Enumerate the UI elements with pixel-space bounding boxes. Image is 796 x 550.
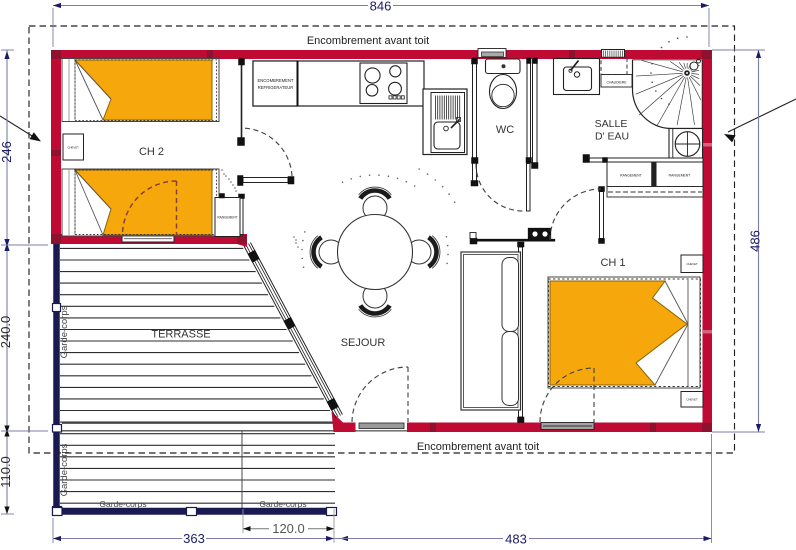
svg-text:RANGEMENT: RANGEMENT [217, 216, 237, 220]
svg-text:120.0: 120.0 [272, 521, 305, 536]
svg-text:Garde-corps: Garde-corps [99, 499, 146, 509]
svg-text:110.0: 110.0 [0, 456, 13, 488]
svg-text:D' EAU: D' EAU [595, 131, 629, 143]
svg-text:SEJOUR: SEJOUR [341, 337, 386, 349]
svg-text:483: 483 [505, 532, 527, 547]
svg-text:CHEVET: CHEVET [686, 398, 698, 402]
svg-text:CHEVET: CHEVET [68, 146, 80, 150]
svg-text:Garde-corps: Garde-corps [59, 305, 70, 358]
svg-text:SALLE: SALLE [595, 118, 628, 130]
svg-text:ENCOMBREMENT: ENCOMBREMENT [257, 78, 294, 83]
svg-text:Garde-corps: Garde-corps [59, 443, 70, 496]
svg-text:246: 246 [0, 141, 14, 163]
svg-text:RANGEMENT: RANGEMENT [669, 174, 691, 178]
svg-text:WC: WC [496, 124, 514, 136]
svg-text:CH 1: CH 1 [600, 257, 625, 269]
svg-text:TERRASSE: TERRASSE [151, 329, 210, 341]
svg-text:CHAUDIERE: CHAUDIERE [607, 81, 628, 85]
svg-text:363: 363 [183, 531, 205, 546]
svg-text:Garde-corps: Garde-corps [259, 499, 306, 509]
svg-text:486: 486 [748, 230, 763, 252]
svg-text:Encombrement avant toit: Encombrement avant toit [307, 35, 429, 47]
svg-text:240.0: 240.0 [0, 316, 13, 349]
svg-text:846: 846 [370, 0, 392, 14]
svg-text:Encombrement avant toit: Encombrement avant toit [417, 441, 539, 453]
svg-text:RANGEMENT: RANGEMENT [620, 174, 642, 178]
svg-text:CH 2: CH 2 [139, 146, 164, 158]
svg-text:REFRIGERATEUR: REFRIGERATEUR [258, 85, 294, 90]
svg-text:CHEVET: CHEVET [686, 262, 698, 266]
